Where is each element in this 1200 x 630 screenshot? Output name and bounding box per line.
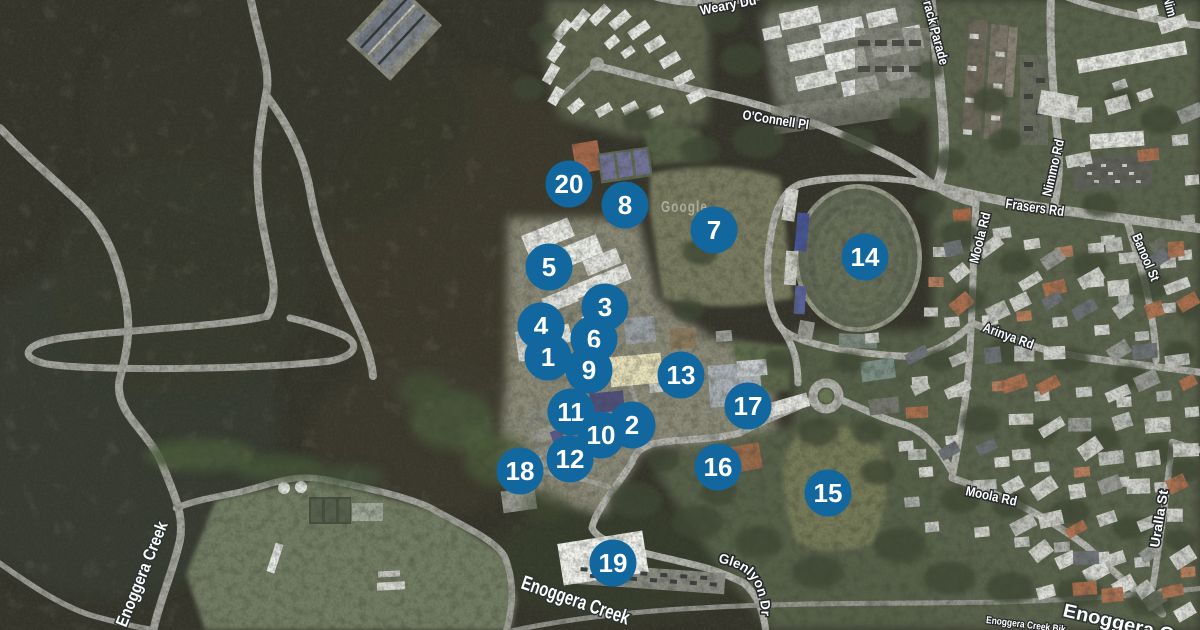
svg-text:5: 5 xyxy=(542,252,556,282)
svg-text:11: 11 xyxy=(557,397,585,427)
svg-text:12: 12 xyxy=(556,444,585,474)
svg-text:1: 1 xyxy=(541,342,555,372)
svg-text:19: 19 xyxy=(599,548,628,578)
svg-text:3: 3 xyxy=(598,292,612,322)
svg-text:7: 7 xyxy=(707,215,721,245)
svg-text:17: 17 xyxy=(734,391,763,421)
svg-text:8: 8 xyxy=(618,190,632,220)
svg-text:16: 16 xyxy=(704,452,733,482)
svg-text:15: 15 xyxy=(814,478,843,508)
svg-text:9: 9 xyxy=(582,355,596,385)
svg-text:10: 10 xyxy=(587,420,616,450)
svg-text:14: 14 xyxy=(851,242,880,272)
svg-text:20: 20 xyxy=(555,169,584,199)
svg-text:18: 18 xyxy=(506,456,535,486)
svg-text:13: 13 xyxy=(667,360,696,390)
svg-text:2: 2 xyxy=(625,410,639,440)
